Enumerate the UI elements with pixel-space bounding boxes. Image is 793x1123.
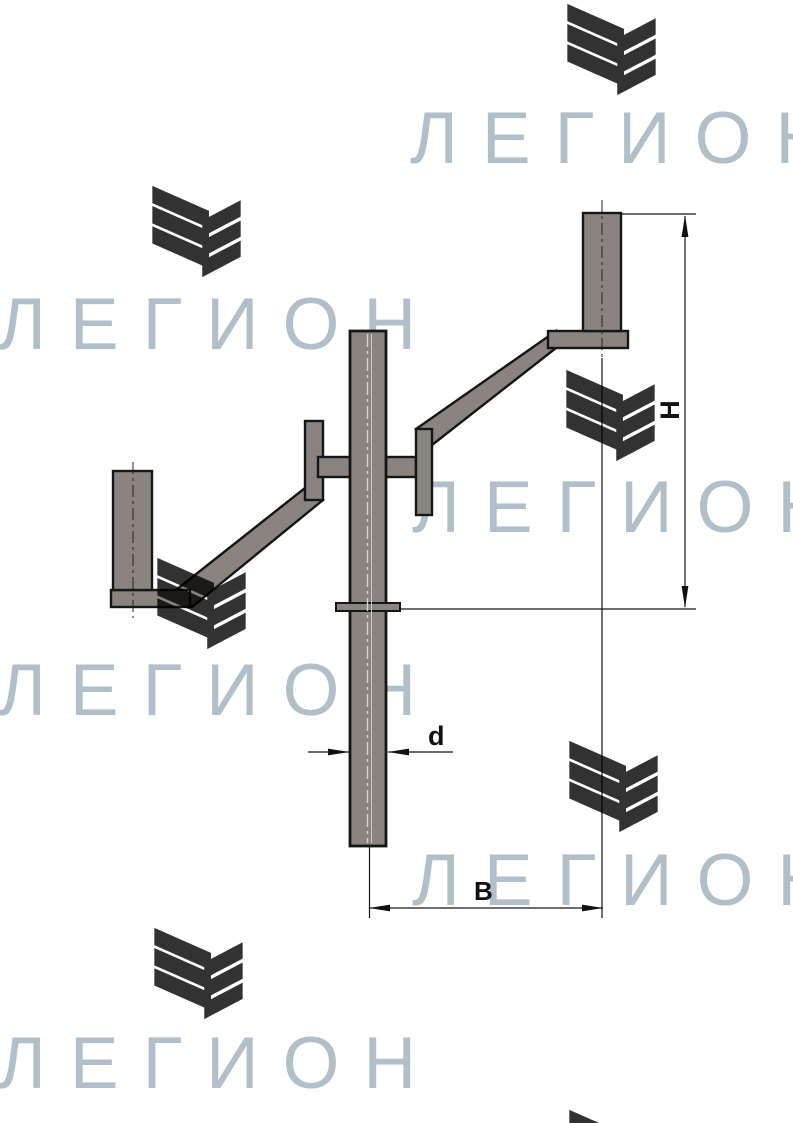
right-arm-diagonal (416, 331, 556, 445)
dim-label-b: B (474, 876, 493, 907)
chevron-logo-icon (145, 925, 252, 1021)
dim-label-d: d (428, 721, 445, 752)
dim-height-arrow-top (682, 215, 689, 237)
chevron-logo-icon (558, 1, 665, 97)
chevron-logo-icon (560, 1107, 667, 1123)
chevron-logo-icon (143, 183, 250, 279)
dim-diameter-arrow-right (388, 749, 409, 756)
drawing-page: ЛЕГИОН ЛЕГИОН ЛЕГИОН ЛЕГИОН ЛЕГИОН ЛЕГИО… (0, 0, 793, 1123)
dim-width-arrow-left (370, 905, 391, 912)
right-arm-plate (548, 331, 628, 348)
chevron-logo-icon (560, 738, 667, 834)
dim-diameter-arrow-left (328, 749, 349, 756)
chevron-logo-icon (557, 367, 664, 463)
dim-width-arrow-right (582, 905, 603, 912)
chevron-logo-icon (148, 555, 255, 651)
dim-height-arrow-bottom (682, 586, 689, 608)
right-stub (416, 429, 432, 515)
bracket-drawing (0, 0, 793, 1123)
